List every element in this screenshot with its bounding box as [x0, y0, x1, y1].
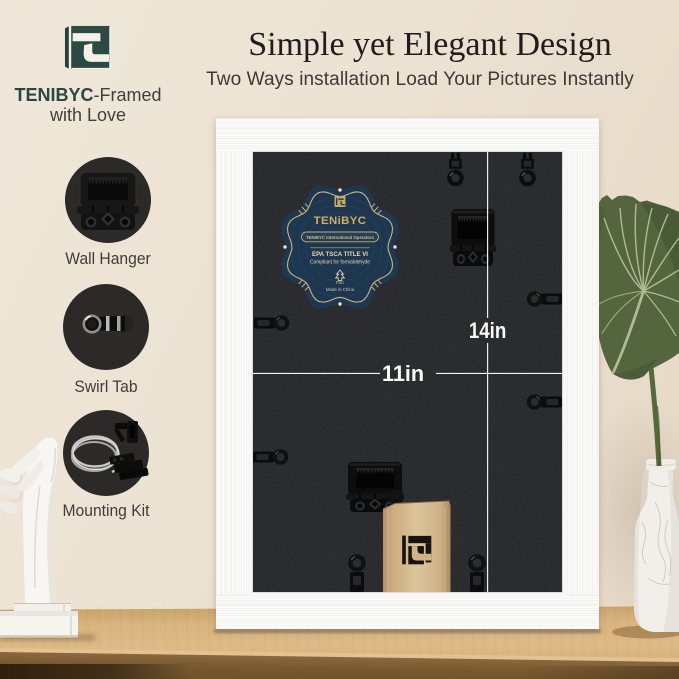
- svg-text:Compliant for formaldehyde: Compliant for formaldehyde: [310, 259, 371, 265]
- svg-text:TENiBYC: TENiBYC: [314, 215, 367, 227]
- svg-text:FSC: FSC: [336, 280, 344, 285]
- svg-text:Made in China: Made in China: [326, 287, 355, 292]
- svg-text:TENIBYC International Operator: TENIBYC International Operators: [306, 235, 374, 240]
- svg-text:11in: 11in: [382, 361, 424, 386]
- svg-text:EPA TSCA TITLE VI: EPA TSCA TITLE VI: [312, 251, 368, 258]
- svg-text:14in: 14in: [469, 318, 507, 343]
